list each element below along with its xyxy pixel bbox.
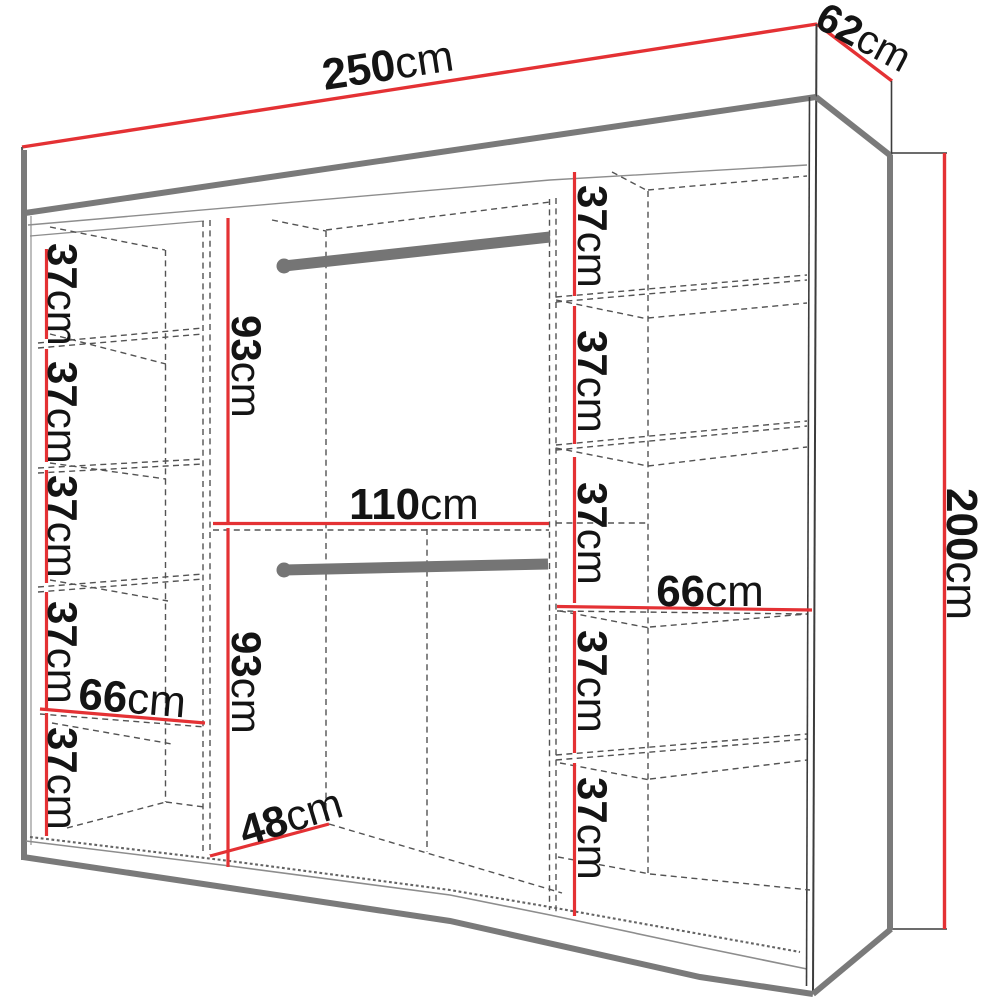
svg-text:37cm: 37cm — [569, 482, 616, 585]
svg-text:37cm: 37cm — [39, 243, 86, 346]
svg-text:37cm: 37cm — [569, 630, 616, 733]
svg-text:37cm: 37cm — [569, 777, 616, 880]
svg-text:110cm: 110cm — [349, 480, 479, 529]
svg-text:37cm: 37cm — [39, 727, 86, 830]
svg-text:37cm: 37cm — [39, 361, 86, 464]
svg-text:37cm: 37cm — [39, 475, 86, 578]
svg-text:93cm: 93cm — [223, 315, 270, 418]
svg-text:37cm: 37cm — [569, 185, 616, 288]
svg-text:93cm: 93cm — [223, 631, 270, 734]
svg-text:66cm: 66cm — [656, 567, 764, 616]
svg-text:37cm: 37cm — [569, 330, 616, 433]
svg-text:66cm: 66cm — [77, 670, 188, 728]
svg-text:200cm: 200cm — [937, 488, 986, 620]
